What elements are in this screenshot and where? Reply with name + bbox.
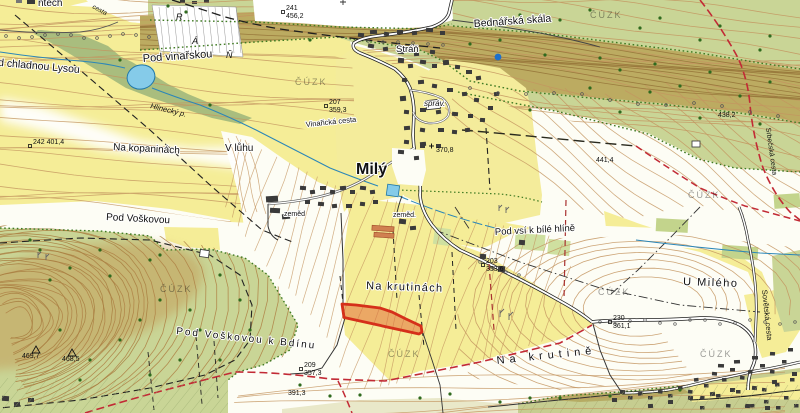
svg-text:ČÚZK: ČÚZK (700, 349, 733, 359)
svg-text:Á: Á (191, 36, 198, 46)
svg-text:438,2: 438,2 (718, 112, 736, 119)
svg-text:207: 207 (329, 99, 341, 106)
svg-text:ČÚZK: ČÚZK (688, 190, 721, 200)
svg-text:ČÚZK: ČÚZK (598, 287, 631, 297)
svg-text:ČÚZK: ČÚZK (295, 77, 328, 87)
svg-text:242 401,4: 242 401,4 (33, 139, 64, 146)
svg-text:R: R (176, 12, 183, 22)
svg-text:357,3: 357,3 (304, 370, 322, 377)
svg-text:241: 241 (286, 5, 298, 12)
svg-text:391,3: 391,3 (288, 390, 306, 397)
svg-text:456,2: 456,2 (286, 13, 304, 20)
svg-text:zeměd: zeměd (284, 211, 305, 218)
svg-text:U Milého: U Milého (683, 276, 739, 290)
svg-text:Stráň: Stráň (396, 44, 419, 55)
svg-text:469,7: 469,7 (22, 353, 40, 360)
svg-text:správ.: správ. (424, 99, 445, 108)
svg-text:Milý: Milý (356, 161, 387, 178)
svg-text:468,5: 468,5 (62, 356, 80, 363)
svg-text:zeměd.: zeměd. (393, 212, 416, 219)
svg-text:Ň: Ň (226, 50, 233, 60)
svg-text:209: 209 (304, 362, 316, 369)
svg-text:ntěch: ntěch (38, 0, 62, 9)
svg-text:361,1: 361,1 (613, 323, 631, 330)
svg-text:441,4: 441,4 (596, 157, 614, 164)
svg-text:ČÚZK: ČÚZK (590, 10, 623, 20)
svg-text:203: 203 (486, 258, 498, 265)
svg-text:230: 230 (613, 315, 625, 322)
svg-text:ČÚZK: ČÚZK (160, 284, 193, 294)
svg-text:ČÚZK: ČÚZK (388, 349, 421, 359)
svg-text:V lůhu: V lůhu (225, 142, 253, 154)
svg-text:359,3: 359,3 (329, 107, 347, 114)
svg-text:370,8: 370,8 (436, 147, 454, 154)
svg-text:353,6: 353,6 (486, 266, 504, 273)
